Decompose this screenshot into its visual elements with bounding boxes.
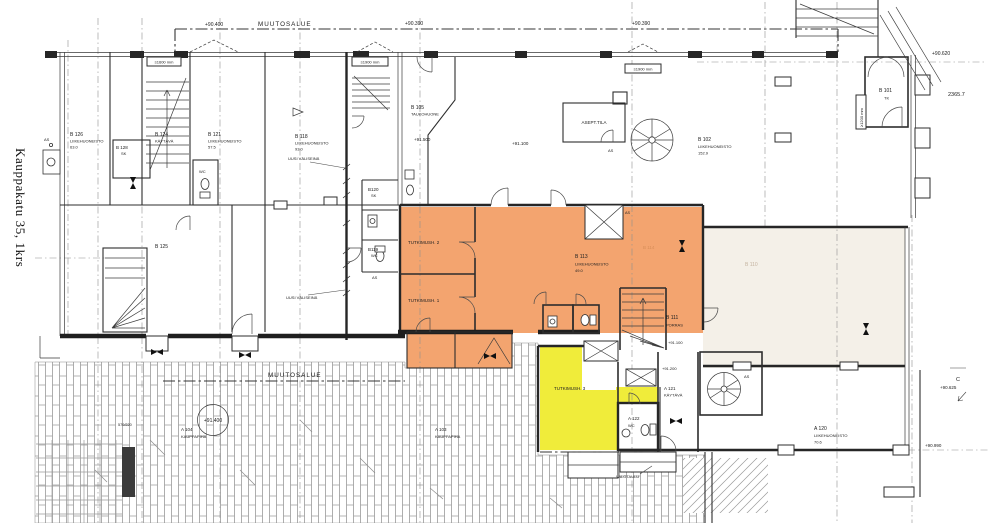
room-id-label: B 113 (575, 254, 588, 260)
level-label: +90.990 (925, 443, 942, 448)
dimension-label: 2365.7 (948, 92, 965, 98)
as-marker-label: AS (372, 275, 378, 280)
room-area-label: 152.9 (698, 151, 709, 156)
level-label: +91.200 (662, 366, 677, 371)
room-type-label: LIIKEHUONEISTO (814, 433, 848, 438)
room-type-label: TK (884, 96, 889, 101)
room-type-label: LIIKEHUONEISTO (295, 141, 329, 146)
dim-bowtie-icon (239, 352, 251, 358)
spiral-stair-a120-icon (708, 373, 741, 406)
drawing-title: Kauppakatu 35, 1krs (13, 148, 28, 267)
diagonal-hatch-patch (683, 458, 768, 513)
room-type-label: LIIKEHUONEISTO (575, 262, 609, 267)
window-dim-label: ≥1900 mm (361, 60, 381, 65)
room-id-label: B120 (368, 187, 379, 192)
window-dim-label: ≥1600 mm (155, 60, 175, 65)
orange-zone-lower (407, 332, 512, 368)
room-type-label: KÄYTÄVÄ (155, 139, 174, 144)
room-id-label: A 121 (664, 386, 676, 391)
room-id-label: A 104 (181, 427, 193, 432)
stair-b124-icon (146, 78, 189, 170)
room-id-label: A 103 (435, 427, 447, 432)
room-id-label: B 126 (70, 132, 83, 138)
room-area-label: 70.6 (814, 440, 823, 445)
floor-plan-canvas: Kauppakatu 35, 1krs MUUTOSALUE MUUTOSALU… (0, 0, 1000, 523)
floor-plan-page: Kauppakatu 35, 1krs MUUTOSALUE MUUTOSALU… (0, 0, 1000, 523)
room-type-label: WC (628, 423, 635, 428)
window-dim-label: ≥1900 mm (634, 67, 654, 72)
valotaulu-label: VALOTAULU (616, 474, 639, 479)
elevation-label: +90.390 (632, 21, 650, 27)
room-id-label: B 114 (643, 245, 655, 250)
room-id-label: B 101 (879, 88, 892, 94)
structural-pier-solid (122, 447, 135, 497)
level-label: +91.100 (512, 141, 529, 146)
room-type-label: SK (121, 151, 127, 156)
room-id-label: B 111 (666, 315, 679, 321)
new-wall-label: UUSI VÄLISEINÄ (286, 295, 318, 300)
section-marker-label: C (956, 377, 960, 383)
winder-stair-b125-icon (105, 258, 145, 328)
elevator-shaft-icon (585, 205, 623, 239)
dim-bowtie-icon (670, 418, 682, 424)
dimension-label: 570/220 (118, 423, 132, 427)
room-id-label: TUTKIMUSH. 1 (408, 298, 440, 303)
room-type-label: KAUPPAPIHA (435, 434, 461, 439)
room-id-label: B 124 (155, 132, 168, 138)
room-id-label: B 110 (745, 262, 758, 268)
wc-toilet-icon (405, 170, 414, 195)
wc-toilet-icon (641, 424, 656, 436)
dim-bowtie-icon (130, 177, 136, 189)
elevator-shaft-icon (626, 369, 656, 386)
pale-zone-b110 (703, 228, 905, 368)
room-id-label: WC (199, 169, 206, 174)
room-type-label: LIIKEHUONEISTO (698, 144, 732, 149)
room-area-label: 93.0 (295, 147, 304, 152)
level-label: +91.500 (414, 137, 431, 142)
entry-fixture-icon (43, 143, 60, 174)
room-type-label: LIIKEHUONEISTO (70, 139, 104, 144)
as-marker-label: AS (608, 148, 614, 153)
room-type-label: LIIKEHUONEISTO (208, 139, 242, 144)
as-marker-label: AS (744, 374, 750, 379)
room-type-label: PORRAS (666, 323, 683, 328)
room-area-label: 63.0 (70, 145, 79, 150)
room-type-label: KAUPPAPIHA (181, 434, 207, 439)
as-marker-label: AS (44, 137, 50, 142)
elevation-label: +90.400 (205, 22, 223, 28)
orange-zone-main (400, 207, 703, 333)
room-id-label: B 121 (208, 132, 221, 138)
room-id-label: B 125 (155, 244, 168, 250)
sink-icon (368, 215, 377, 227)
new-wall-label: UUSI VÄLISEINÄ (288, 156, 320, 161)
as-marker-label: AS (625, 211, 631, 215)
sink-icon (622, 429, 630, 437)
elevation-label: +90.390 (405, 21, 423, 27)
room-id-label: B 128 (116, 145, 128, 150)
elevation-label: +90.620 (932, 51, 950, 57)
room-id-label: TUTKIMUSH. 3 (554, 386, 586, 391)
room-id-label: A 122 (628, 416, 640, 421)
room-id-label: TUTKIMUSH. 2 (408, 240, 440, 245)
room-id-label: ASEPT.TILA (581, 120, 606, 125)
wc-toilet-icon (200, 179, 210, 199)
door-dim-label: ≥1200 mm (859, 107, 864, 127)
spiral-stair-hall-icon (631, 119, 673, 161)
room-id-label: B 118 (295, 134, 308, 140)
level-label: +91.400 (204, 418, 222, 424)
level-label: +90.625 (940, 385, 957, 390)
stair-upper-icon (352, 76, 390, 110)
room-type-label: TAUKOHUONE (411, 112, 439, 117)
level-label: +91.100 (668, 340, 683, 345)
muutosalue-label-mid: MUUTOSALUE (268, 372, 322, 379)
room-id-label: B 105 (411, 105, 424, 111)
room-area-label: 57.5 (208, 145, 217, 150)
yellow-zone (540, 346, 658, 450)
room-id-label: B 102 (698, 137, 711, 143)
elevator-shaft-icon (584, 341, 618, 361)
room-type-label: WC (371, 253, 378, 258)
sink-icon (548, 316, 557, 327)
room-id-label: B119 (368, 247, 379, 252)
muutosalue-label-top: MUUTOSALUE (258, 21, 312, 28)
room-id-label: A 120 (814, 426, 827, 432)
room-type-label: KÄYTÄVÄ (664, 393, 683, 398)
room-type-label: SK (371, 193, 377, 198)
room-area-label: 49.0 (575, 268, 584, 273)
